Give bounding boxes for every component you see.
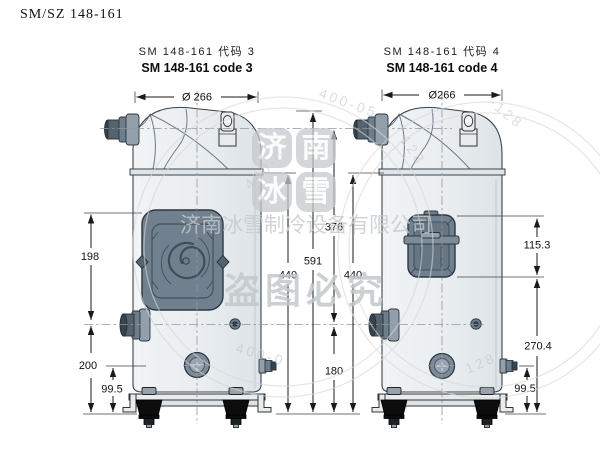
dim-diameter-left: Ø 266 bbox=[182, 92, 212, 104]
dim-440-left: 440 bbox=[279, 270, 297, 282]
right-view-title-cn: SM 148-161 代码 4 bbox=[337, 43, 547, 59]
suction-port bbox=[120, 309, 150, 341]
dim-376: 376 bbox=[325, 222, 343, 234]
suction-port bbox=[369, 309, 399, 341]
base-assembly bbox=[372, 388, 513, 428]
left-view-title-cn: SM 148-161 代码 3 bbox=[92, 43, 302, 59]
dim-99-5-left: 99.5 bbox=[101, 384, 122, 396]
dim-270-4: 270.4 bbox=[524, 341, 552, 353]
dim-198: 198 bbox=[81, 251, 99, 263]
lifting-bracket bbox=[460, 112, 477, 146]
technical-drawing-page: Ø 266 198 200 99.5 440 591 376 180 440 Ø… bbox=[0, 0, 600, 450]
lifting-bracket bbox=[219, 112, 236, 146]
dim-180: 180 bbox=[325, 366, 343, 378]
terminal-box bbox=[136, 210, 229, 310]
dim-591: 591 bbox=[304, 256, 322, 268]
right-view-title-en: SM 148-161 code 4 bbox=[337, 61, 547, 75]
terminal-box bbox=[404, 211, 459, 277]
discharge-port bbox=[105, 114, 140, 145]
compressor-code-3 bbox=[105, 107, 277, 427]
page-title: SM/SZ 148-161 bbox=[20, 7, 124, 23]
discharge-port bbox=[354, 114, 389, 145]
oil-fitting bbox=[259, 359, 276, 373]
oil-fitting bbox=[500, 359, 517, 373]
shell-seam bbox=[130, 169, 263, 175]
dim-115-3: 115.3 bbox=[524, 240, 551, 252]
compressor-code-4 bbox=[354, 107, 518, 427]
dim-99-5-right: 99.5 bbox=[514, 383, 535, 395]
dim-diameter-right: Ø266 bbox=[429, 90, 456, 102]
left-view-title-en: SM 148-161 code 3 bbox=[92, 61, 302, 75]
dim-440-right: 440 bbox=[344, 270, 362, 282]
dim-200: 200 bbox=[79, 360, 97, 372]
